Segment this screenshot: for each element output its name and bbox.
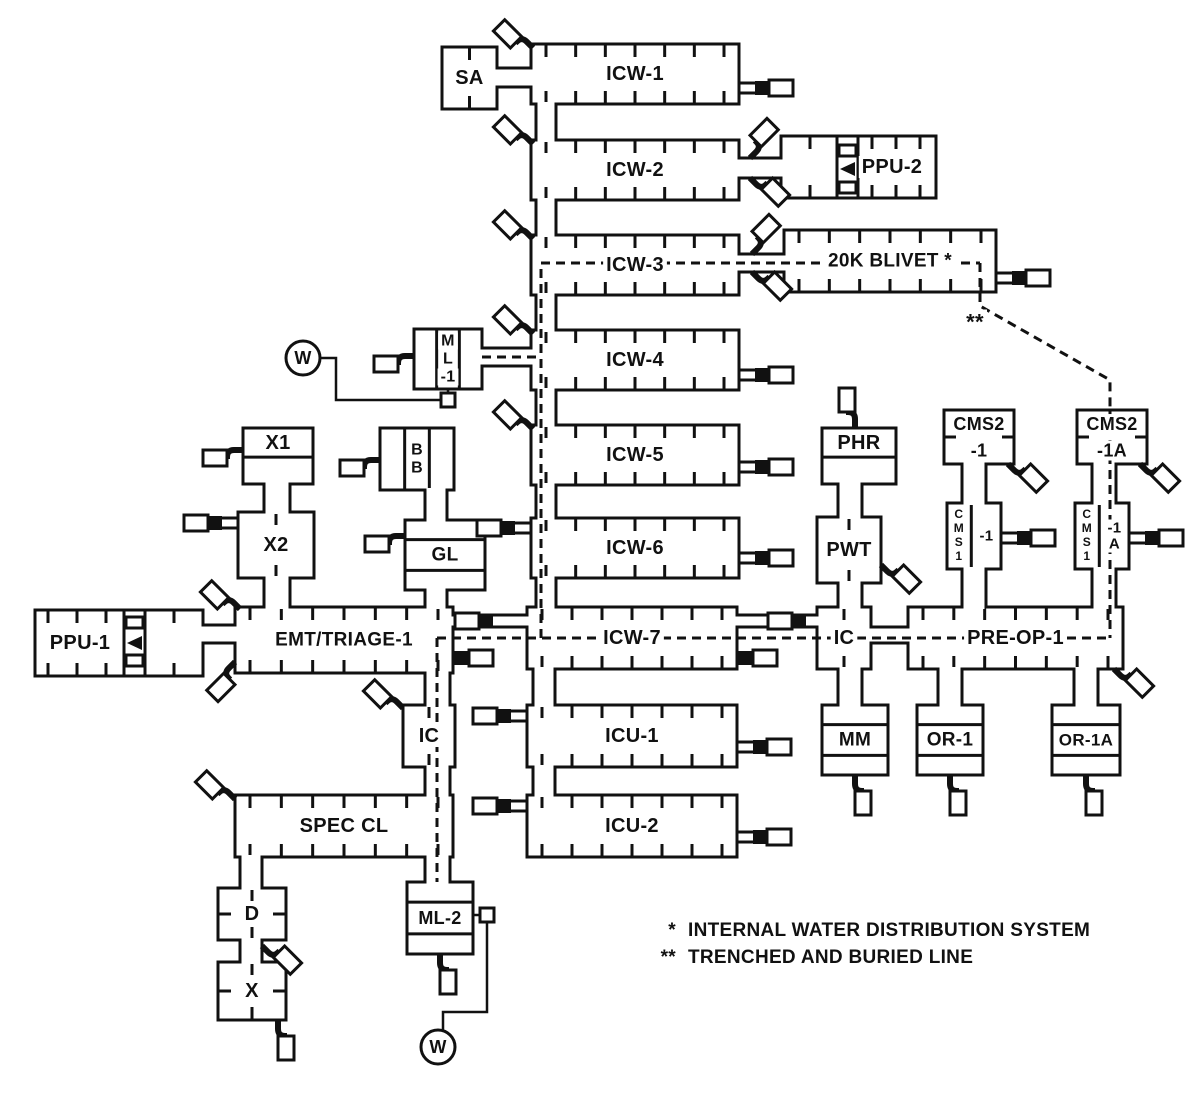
duct — [240, 855, 262, 890]
pipe-connector — [735, 613, 819, 629]
label-text: -1 — [441, 369, 456, 386]
junction-square — [441, 393, 455, 407]
faucet-valve-icon — [374, 356, 414, 372]
label-text: L — [443, 351, 453, 368]
duct — [869, 627, 910, 643]
label-text: ML-2 — [418, 908, 461, 928]
label-text: ICU-2 — [605, 815, 659, 837]
duct — [838, 667, 862, 707]
legend-row: ** TRENCHED AND BURIED LINE — [640, 947, 1090, 969]
generator-tooth — [126, 655, 143, 666]
spigot-body — [769, 459, 793, 475]
spigot-connector-icon — [996, 270, 1050, 286]
duct-fill — [869, 629, 910, 642]
label-text: OR-1A — [1059, 731, 1113, 750]
label-text: 1 — [1083, 549, 1090, 563]
duct — [425, 588, 447, 609]
label: B — [408, 460, 426, 477]
spigot-block — [208, 516, 222, 530]
spigot-block — [737, 651, 753, 665]
spigot-block — [753, 830, 767, 844]
duct — [536, 198, 556, 237]
label: W — [291, 348, 314, 368]
label: A — [1106, 536, 1123, 553]
faucet-valve-icon — [203, 450, 243, 466]
faucet-body — [855, 791, 871, 815]
spigot-block — [755, 460, 769, 474]
faucet-neck — [278, 1020, 287, 1036]
duct — [536, 576, 556, 609]
legend-text-buried: TRENCHED AND BURIED LINE — [688, 947, 973, 969]
duct — [1092, 567, 1116, 609]
label: SPEC CL — [297, 815, 392, 837]
duct — [838, 581, 862, 609]
spigot-body — [1031, 530, 1055, 546]
spigot-connector-icon — [473, 708, 527, 724]
duct-fill — [427, 488, 446, 522]
spigot-block — [753, 740, 767, 754]
label: OR-1A — [1056, 731, 1116, 750]
spigot-connector-icon — [739, 80, 793, 96]
label: ICW-4 — [603, 349, 667, 371]
legend: * INTERNAL WATER DISTRIBUTION SYSTEM ** … — [640, 920, 1090, 969]
faucet-valve-icon — [493, 20, 533, 60]
label: MM — [836, 730, 874, 751]
label-text: A — [1109, 536, 1120, 553]
label-text: EMT/TRIAGE-1 — [275, 630, 413, 651]
duct-fill — [840, 581, 861, 609]
label-text: ICW-4 — [606, 349, 664, 371]
spigot-body — [477, 520, 501, 536]
label-text: X2 — [263, 534, 288, 556]
duct — [201, 625, 237, 643]
pipe-connector — [451, 613, 529, 629]
label: OR-1 — [924, 730, 977, 751]
duct-fill — [538, 198, 555, 237]
label-text: C — [954, 507, 963, 521]
faucet-body — [278, 1036, 294, 1060]
label-text: IC — [419, 725, 440, 747]
label: PHR — [834, 432, 883, 454]
duct — [938, 667, 962, 707]
label-text: 1 — [955, 549, 962, 563]
label: M — [1079, 521, 1095, 535]
duct-fill — [535, 667, 554, 707]
label: IC — [416, 725, 443, 747]
label: -1 — [1104, 520, 1124, 537]
label: B — [408, 442, 426, 459]
label-text: W — [294, 348, 311, 368]
faucet-valve-icon — [493, 116, 533, 156]
duct — [962, 462, 986, 505]
label: CMS2 — [1083, 414, 1140, 434]
duct — [533, 765, 555, 797]
duct-fill — [964, 462, 985, 505]
valve-body-icon — [455, 613, 479, 629]
label-text: PPU-2 — [862, 156, 922, 178]
label: M — [951, 521, 967, 535]
duct-fill — [1076, 667, 1097, 707]
spigot-body — [473, 708, 497, 724]
faucet-valve-icon — [950, 775, 966, 815]
spigot-body — [184, 515, 208, 531]
label-text: X1 — [265, 432, 290, 454]
duct — [838, 482, 862, 519]
spigot-body — [753, 650, 777, 666]
label: S — [1080, 535, 1094, 549]
spigot-body — [767, 739, 791, 755]
ppu1-generator — [124, 610, 145, 676]
spigot-block — [755, 551, 769, 565]
spigot-connector-icon — [737, 650, 777, 666]
faucet-valve-icon — [278, 1020, 294, 1060]
spigot-body — [469, 650, 493, 666]
label-text: GL — [432, 545, 459, 566]
label-text: IC — [834, 627, 855, 649]
faucet-valve-icon — [440, 954, 456, 994]
duct-fill — [266, 576, 289, 609]
faucet-neck — [227, 450, 243, 459]
label: ML-2 — [415, 908, 464, 928]
duct — [240, 938, 262, 964]
legend-text-internal: INTERNAL WATER DISTRIBUTION SYSTEM — [688, 920, 1090, 942]
label-text: PHR — [837, 432, 880, 454]
duct-fill — [964, 567, 985, 609]
valve-body-icon — [768, 613, 792, 629]
label: D — [242, 903, 263, 925]
faucet-neck — [398, 356, 414, 365]
label: GL — [429, 545, 462, 566]
faucet-valve-icon — [363, 680, 403, 720]
label: -1 — [438, 369, 459, 386]
label: L — [440, 351, 456, 368]
faucet-body — [365, 536, 389, 552]
label-text: -1 — [1107, 520, 1121, 537]
duct-fill — [940, 667, 961, 707]
duct — [536, 483, 556, 520]
faucet-neck — [440, 954, 449, 970]
junction-square — [480, 908, 494, 922]
label-text: -1 — [979, 528, 993, 545]
spigot-connector-icon — [473, 798, 527, 814]
label-text: M — [1082, 521, 1092, 535]
duct — [264, 482, 290, 514]
faucet-valve-icon — [493, 306, 533, 346]
label: ICU-1 — [602, 725, 662, 747]
generator-tooth — [839, 182, 856, 193]
faucet-valve-icon — [739, 118, 779, 158]
label: M — [438, 333, 458, 350]
spigot-block — [497, 709, 511, 723]
label: PRE-OP-1 — [964, 627, 1067, 649]
duct-fill — [737, 160, 783, 177]
label: C — [1079, 507, 1094, 521]
faucet-valve-icon — [493, 211, 533, 251]
label-text: S — [1083, 535, 1091, 549]
spigot-connector-icon — [453, 650, 493, 666]
label: S — [952, 535, 966, 549]
duct — [495, 68, 533, 87]
label-text: ICU-1 — [605, 725, 659, 747]
legend-row: * INTERNAL WATER DISTRIBUTION SYSTEM — [640, 920, 1090, 942]
label: ** — [963, 310, 987, 335]
spigot-connector-icon — [737, 829, 791, 845]
label-text: ICW-6 — [606, 537, 664, 559]
duct — [536, 388, 556, 427]
label: C — [951, 507, 966, 521]
label-text: CMS2 — [953, 414, 1004, 434]
label-text: MM — [839, 730, 871, 751]
label-text: W — [429, 1037, 446, 1057]
label-text: ** — [966, 310, 984, 335]
label: 1 — [952, 549, 965, 563]
duct — [536, 293, 556, 332]
faucet-neck — [389, 536, 405, 545]
valve-block-icon — [792, 614, 806, 628]
faucet-body — [203, 450, 227, 466]
label-text: ICW-2 — [606, 159, 664, 181]
spigot-block — [497, 799, 511, 813]
spigot-connector-icon — [737, 739, 791, 755]
label-text: S — [955, 535, 963, 549]
label: ICU-2 — [602, 815, 662, 837]
duct-fill — [1094, 567, 1115, 609]
label-text: B — [411, 460, 423, 477]
spigot-block — [755, 81, 769, 95]
spigot-block — [1145, 531, 1159, 545]
spigot-block — [1012, 271, 1026, 285]
label-text: M — [441, 333, 455, 350]
duct — [962, 567, 986, 609]
duct — [533, 667, 555, 707]
label-text: SA — [455, 67, 483, 89]
spigot-body — [769, 367, 793, 383]
label-text: B — [411, 442, 423, 459]
faucet-valve-icon — [340, 460, 380, 476]
generator-tooth — [126, 617, 143, 628]
spigot-body — [1159, 530, 1183, 546]
label-text: -1 — [971, 441, 988, 461]
spigot-connector-icon — [477, 520, 531, 536]
faucet-body — [950, 791, 966, 815]
duct — [425, 488, 447, 522]
label-text: ICW-1 — [606, 63, 664, 85]
label-text: M — [954, 521, 964, 535]
duct-fill — [1094, 462, 1115, 505]
duct-fill — [535, 765, 554, 797]
label: ICW-2 — [603, 159, 667, 181]
label: CMS2 — [950, 414, 1007, 434]
faucet-valve-icon — [1086, 775, 1102, 815]
duct-fill — [201, 627, 237, 642]
label: EMT/TRIAGE-1 — [272, 630, 416, 651]
faucet-valve-icon — [839, 388, 855, 428]
duct-fill — [427, 588, 446, 609]
label-text: PPU-1 — [50, 632, 110, 654]
faucet-body — [839, 388, 855, 412]
faucet-neck — [364, 460, 380, 469]
spigot-body — [767, 829, 791, 845]
faucet-valve-icon — [493, 401, 533, 441]
label-text: PRE-OP-1 — [967, 627, 1064, 649]
label-text: D — [245, 903, 260, 925]
duct — [737, 158, 783, 178]
label: PPU-1 — [47, 632, 113, 654]
duct-fill — [538, 102, 555, 142]
faucet-body — [440, 970, 456, 994]
label-text: ICW-3 — [606, 254, 664, 276]
valve-block-icon — [479, 614, 493, 628]
spigot-body — [769, 80, 793, 96]
spigot-connector-icon — [1129, 530, 1183, 546]
duct-fill — [840, 667, 861, 707]
spigot-body — [769, 550, 793, 566]
faucet-neck — [1086, 775, 1095, 791]
label: X1 — [262, 432, 293, 454]
faucet-body — [1086, 791, 1102, 815]
faucet-neck — [846, 412, 855, 428]
legend-symbol-buried: ** — [640, 947, 676, 969]
faucet-valve-icon — [195, 771, 235, 811]
label: ICW-7 — [600, 627, 664, 649]
label: ICW-5 — [603, 444, 667, 466]
label-text: SPEC CL — [300, 815, 389, 837]
spigot-connector-icon — [1001, 530, 1055, 546]
duct — [264, 576, 290, 609]
spigot-body — [473, 798, 497, 814]
label-text: ICW-7 — [603, 627, 661, 649]
duct-fill — [242, 855, 261, 890]
spigot-block — [755, 368, 769, 382]
label-text: C — [1082, 507, 1091, 521]
duct-fill — [242, 938, 261, 964]
label: -1 — [976, 528, 996, 545]
label-text: PWT — [826, 539, 871, 561]
faucet-neck — [950, 775, 959, 791]
label: PWT — [823, 539, 874, 561]
label: X — [242, 980, 262, 1002]
label: W — [426, 1037, 449, 1057]
label-text: 20K BLIVET * — [828, 251, 952, 272]
spigot-block — [1017, 531, 1031, 545]
label: ICW-3 — [603, 254, 667, 276]
spigot-connector-icon — [739, 459, 793, 475]
label: PPU-2 — [859, 156, 925, 178]
spigot-connector-icon — [184, 515, 238, 531]
faucet-valve-icon — [855, 775, 871, 815]
duct-fill — [266, 482, 289, 514]
label: IC — [831, 627, 858, 649]
diagram-canvas: SAICW-1ICW-2PPU-2ICW-320K BLIVET *ML-1IC… — [0, 0, 1200, 1104]
faucet-body — [340, 460, 364, 476]
spigot-body — [1026, 270, 1050, 286]
label: -1 — [968, 441, 991, 461]
spigot-block — [501, 521, 515, 535]
faucet-valve-icon — [365, 536, 405, 552]
label: 20K BLIVET * — [825, 251, 955, 272]
duct-fill — [538, 293, 555, 332]
label: ICW-6 — [603, 537, 667, 559]
spigot-connector-icon — [739, 367, 793, 383]
label-text: OR-1 — [927, 730, 974, 751]
faucet-body — [374, 356, 398, 372]
faucet-neck — [855, 775, 864, 791]
label-text: ICW-5 — [606, 444, 664, 466]
label-text: X — [245, 980, 259, 1002]
label-text: -1A — [1097, 441, 1127, 461]
duct — [1074, 667, 1098, 707]
duct — [536, 102, 556, 142]
generator-tooth — [839, 145, 856, 156]
faucet-valve-icon — [881, 554, 921, 594]
label-text: CMS2 — [1086, 414, 1137, 434]
label: ICW-1 — [603, 63, 667, 85]
duct — [1092, 462, 1116, 505]
label: SA — [452, 67, 486, 89]
duct-fill — [840, 482, 861, 519]
label: 1 — [1080, 549, 1093, 563]
label: -1A — [1094, 441, 1130, 461]
label: X2 — [260, 534, 291, 556]
faucet-valve-icon — [741, 214, 781, 254]
spigot-block — [453, 651, 469, 665]
duct-fill — [495, 70, 533, 86]
spigot-connector-icon — [739, 550, 793, 566]
legend-symbol-internal: * — [640, 920, 676, 942]
